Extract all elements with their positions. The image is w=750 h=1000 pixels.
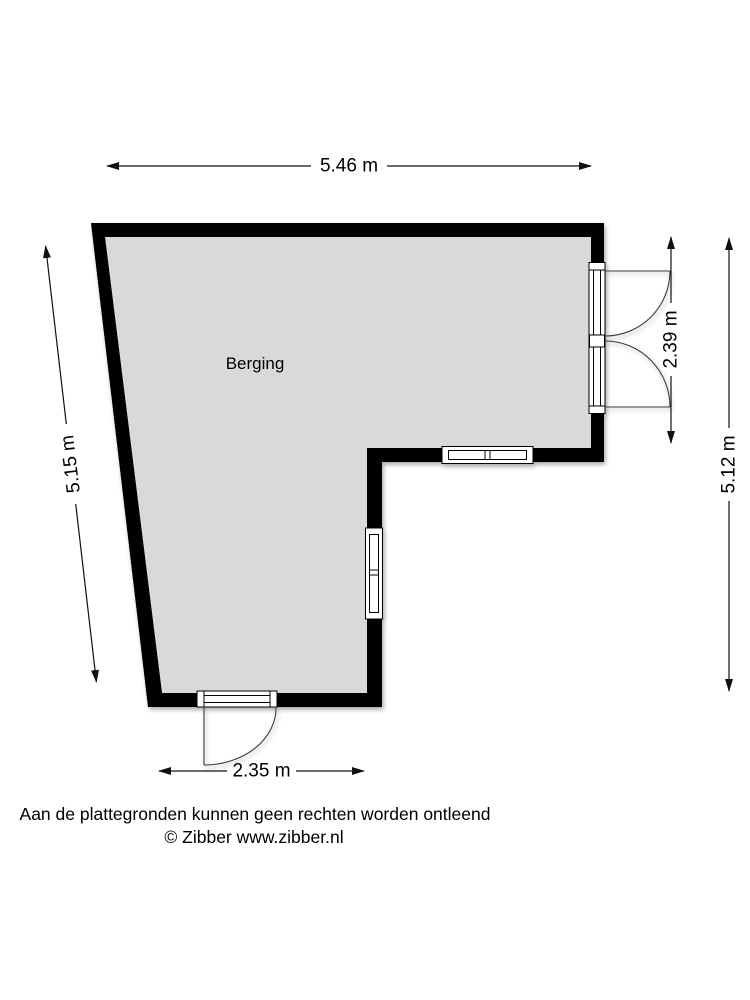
dimension-left-label: 5.15 m bbox=[57, 434, 85, 494]
entry-door-arc bbox=[204, 708, 276, 765]
entry-door-swing bbox=[204, 708, 276, 765]
dimension-right-total-label: 5.12 m bbox=[719, 435, 740, 493]
double-door-meeting-post bbox=[590, 335, 605, 347]
footer-credit: © Zibber www.zibber.nl bbox=[164, 827, 343, 847]
room-label: Berging bbox=[226, 354, 285, 373]
dimension-right-door-label: 2.39 m bbox=[661, 310, 682, 368]
dimension-right-total: 5.12 m bbox=[719, 238, 740, 691]
window-left-mullion bbox=[370, 570, 379, 575]
window-top-mullion bbox=[485, 451, 490, 460]
dimension-bottom-label: 2.35 m bbox=[232, 761, 290, 782]
window-top bbox=[442, 447, 533, 464]
building bbox=[91, 223, 670, 765]
dimension-bottom: 2.35 m bbox=[159, 761, 364, 782]
floorplan-page: 5.46 m 5.15 m 2.39 m 5.12 m 2.35 m Bergi… bbox=[0, 0, 750, 1000]
dimension-left: 5.15 m bbox=[46, 246, 97, 682]
floorplan-svg: 5.46 m 5.15 m 2.39 m 5.12 m 2.35 m Bergi… bbox=[0, 0, 750, 1000]
window-left bbox=[366, 528, 383, 619]
dimension-top-label: 5.46 m bbox=[320, 156, 378, 177]
double-door-frame bbox=[589, 263, 605, 414]
room-floor bbox=[105, 237, 591, 693]
footer-disclaimer: Aan de plattegronden kunnen geen rechten… bbox=[20, 804, 491, 824]
dimension-right-door: 2.39 m bbox=[661, 237, 682, 443]
dimension-top: 5.46 m bbox=[107, 156, 591, 177]
entry-door-frame bbox=[197, 691, 277, 707]
